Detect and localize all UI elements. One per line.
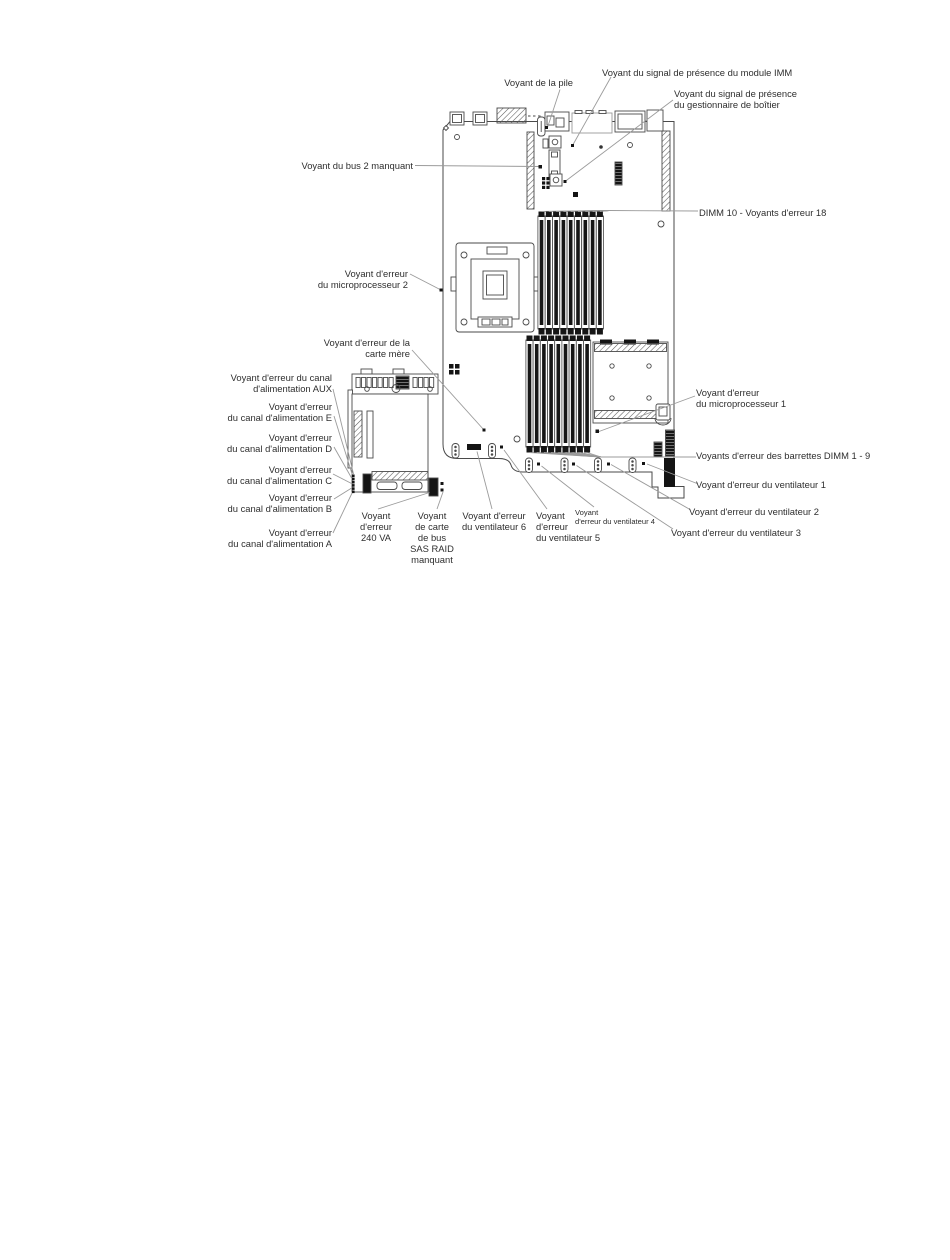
label-fan-3-error-led: Voyant d'erreur du ventilateur 3 — [671, 527, 851, 538]
led — [572, 463, 575, 466]
dimm-led-block — [666, 430, 675, 456]
label-imm-presence-led: Voyant du signal de présence du module I… — [602, 67, 827, 78]
label-fan-4-error-led: Voyant d'erreur du ventilateur 4 — [575, 508, 665, 526]
led — [539, 165, 543, 169]
power-supply-connector-area — [348, 369, 438, 496]
label-microprocessor-1-led: Voyant d'erreur du microprocesseur 1 — [696, 387, 836, 409]
label-fan-1-error-led: Voyant d'erreur du ventilateur 1 — [696, 479, 876, 490]
led — [596, 430, 600, 434]
cpu-socket-2 — [451, 243, 539, 332]
microprocessor-1-heatsink — [593, 340, 671, 426]
led — [571, 144, 574, 147]
led — [545, 126, 548, 129]
pci-riser-slot-1 — [662, 131, 670, 211]
led — [352, 491, 355, 494]
led — [352, 478, 355, 481]
psu-connector-240va — [363, 474, 371, 493]
led — [441, 489, 444, 492]
led — [352, 487, 355, 490]
label-fan-6-error-led: Voyant d'erreur du ventilateur 6 — [444, 510, 544, 532]
led — [564, 180, 567, 183]
label-dimm-10-18-leds: DIMM 10 - Voyants d'erreur 18 — [699, 207, 894, 218]
led — [642, 462, 645, 465]
led — [537, 463, 540, 466]
label-bus-2-missing-led: Voyant du bus 2 manquant — [293, 160, 413, 171]
dimm-bank-10-18 — [538, 211, 609, 335]
label-power-channel-e-led: Voyant d'erreur du canal d'alimentation … — [200, 401, 332, 423]
label-power-channel-c-led: Voyant d'erreur du canal d'alimentation … — [200, 464, 332, 486]
led — [352, 484, 355, 487]
pci-riser-slot-2 — [527, 132, 534, 209]
fan-6-led-block — [467, 444, 481, 450]
label-power-channel-d-led: Voyant d'erreur du canal d'alimentation … — [200, 432, 332, 454]
label-fan-2-error-led: Voyant d'erreur du ventilateur 2 — [689, 506, 869, 517]
label-power-channel-aux-led: Voyant d'erreur du canal d'alimentation … — [202, 372, 332, 394]
led — [607, 463, 610, 466]
label-power-channel-a-led: Voyant d'erreur du canal d'alimentation … — [200, 527, 332, 549]
led — [500, 446, 503, 449]
label-system-board-led: Voyant d'erreur de la carte mère — [290, 337, 410, 359]
label-dimm-1-9-leds: Voyants d'erreur des barrettes DIMM 1 - … — [696, 450, 896, 461]
led — [352, 475, 355, 478]
sas-raid-connector — [429, 478, 438, 496]
led — [441, 482, 444, 485]
led — [483, 429, 486, 432]
label-microprocessor-2-led: Voyant d'erreur du microprocesseur 2 — [288, 268, 408, 290]
dimm-bank-1-9 — [526, 336, 601, 458]
label-enclosure-presence-led: Voyant du signal de présence du gestionn… — [674, 88, 824, 110]
led — [352, 481, 355, 484]
label-power-channel-b-led: Voyant d'erreur du canal d'alimentation … — [200, 492, 332, 514]
led — [440, 289, 443, 292]
label-battery-led: Voyant de la pile — [453, 77, 573, 88]
motherboard-callout-diagram: { "diagram": { "colors": { "component_li… — [0, 0, 950, 1260]
